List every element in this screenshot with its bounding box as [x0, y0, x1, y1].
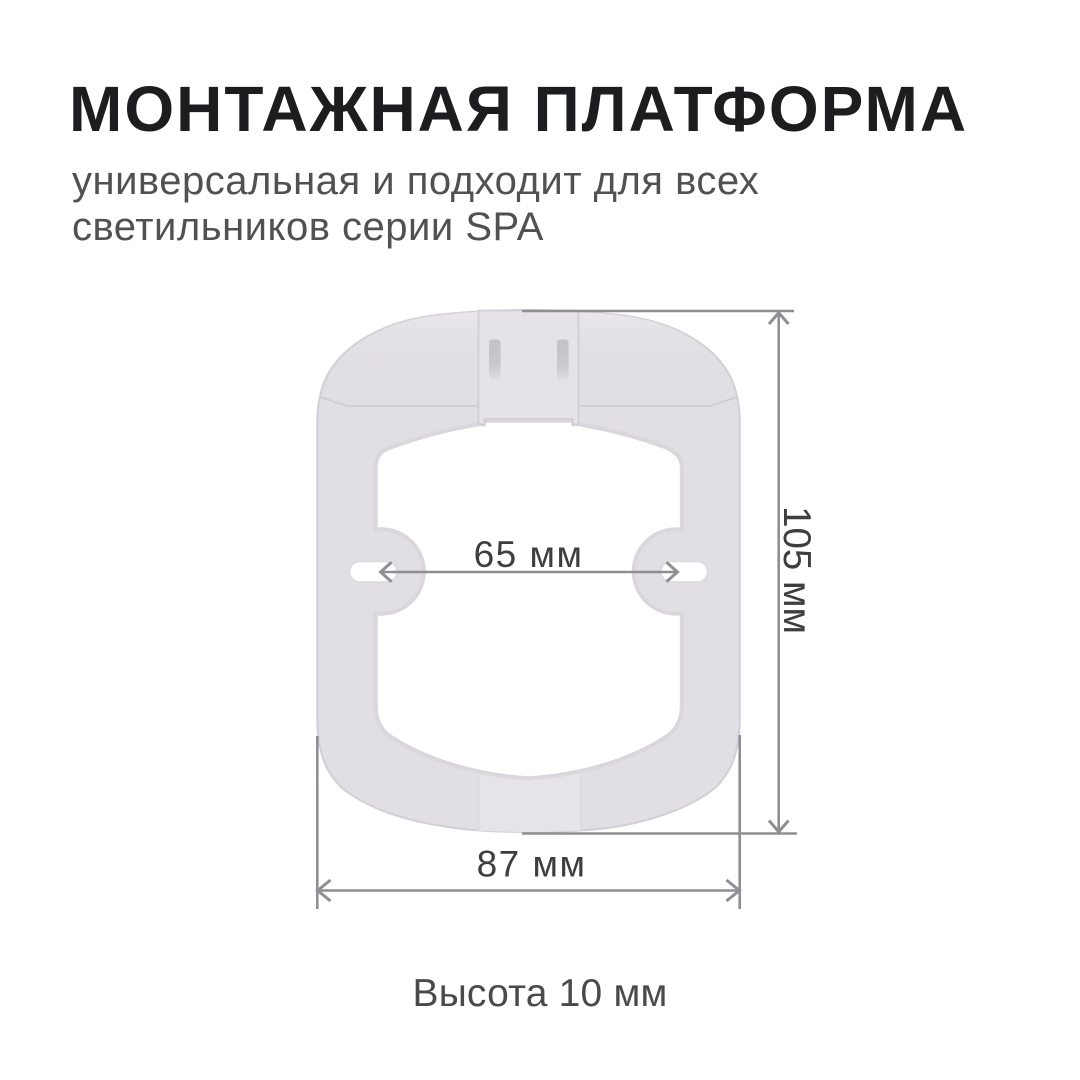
svg-text:65 мм: 65 мм — [474, 534, 584, 575]
svg-text:87 мм: 87 мм — [477, 844, 587, 885]
svg-text:105 мм: 105 мм — [775, 506, 818, 634]
